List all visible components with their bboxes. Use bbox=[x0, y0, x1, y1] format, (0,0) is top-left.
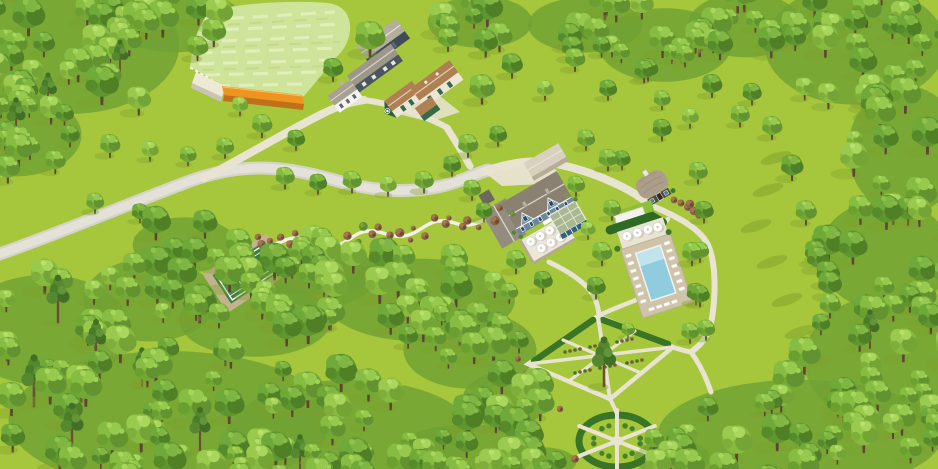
border-shrub bbox=[463, 216, 471, 224]
flower-bed-dot bbox=[593, 344, 597, 348]
flower-bed-dot bbox=[588, 368, 592, 372]
flower-bed-dot bbox=[615, 340, 619, 344]
border-shrub bbox=[292, 230, 298, 236]
border-shrub bbox=[359, 222, 368, 231]
garden-shrub bbox=[571, 455, 579, 463]
border-shrub bbox=[490, 216, 499, 225]
border-shrub bbox=[496, 205, 503, 212]
flower-bed-dot bbox=[563, 350, 567, 354]
border-shrub bbox=[395, 228, 404, 237]
border-shrub bbox=[442, 220, 450, 228]
border-shrub bbox=[421, 232, 429, 240]
garden-shrub bbox=[678, 200, 685, 207]
flower-bed-dot bbox=[635, 359, 639, 363]
border-shrub bbox=[431, 214, 439, 222]
round-garden-center bbox=[612, 436, 622, 446]
border-shrub bbox=[368, 230, 376, 238]
flower-bed-dot bbox=[625, 361, 629, 365]
flower-bed-dot bbox=[573, 371, 577, 375]
garden-shrub bbox=[686, 200, 695, 209]
flower-bed-dot bbox=[640, 358, 644, 362]
estate-map bbox=[0, 0, 938, 469]
flower-bed-dot bbox=[630, 360, 634, 364]
garden-shrub bbox=[557, 406, 563, 412]
flower-bed-dot bbox=[583, 369, 587, 373]
garden-shrub bbox=[671, 197, 678, 204]
border-shrub bbox=[476, 225, 482, 231]
border-shrub bbox=[510, 212, 515, 217]
flower-bed-dot bbox=[568, 349, 572, 353]
flower-bed-dot bbox=[573, 348, 577, 352]
border-shrub bbox=[375, 223, 382, 230]
garden-shrub bbox=[255, 234, 261, 240]
border-shrub bbox=[446, 215, 451, 220]
border-shrub bbox=[408, 237, 413, 242]
border-shrub bbox=[411, 226, 416, 231]
border-shrub bbox=[343, 232, 351, 240]
garden-shrub bbox=[278, 234, 285, 241]
flower-bed-dot bbox=[578, 370, 582, 374]
flower-bed-dot bbox=[578, 347, 582, 351]
flower-bed-dot bbox=[588, 345, 592, 349]
garden-shrub bbox=[515, 356, 521, 362]
